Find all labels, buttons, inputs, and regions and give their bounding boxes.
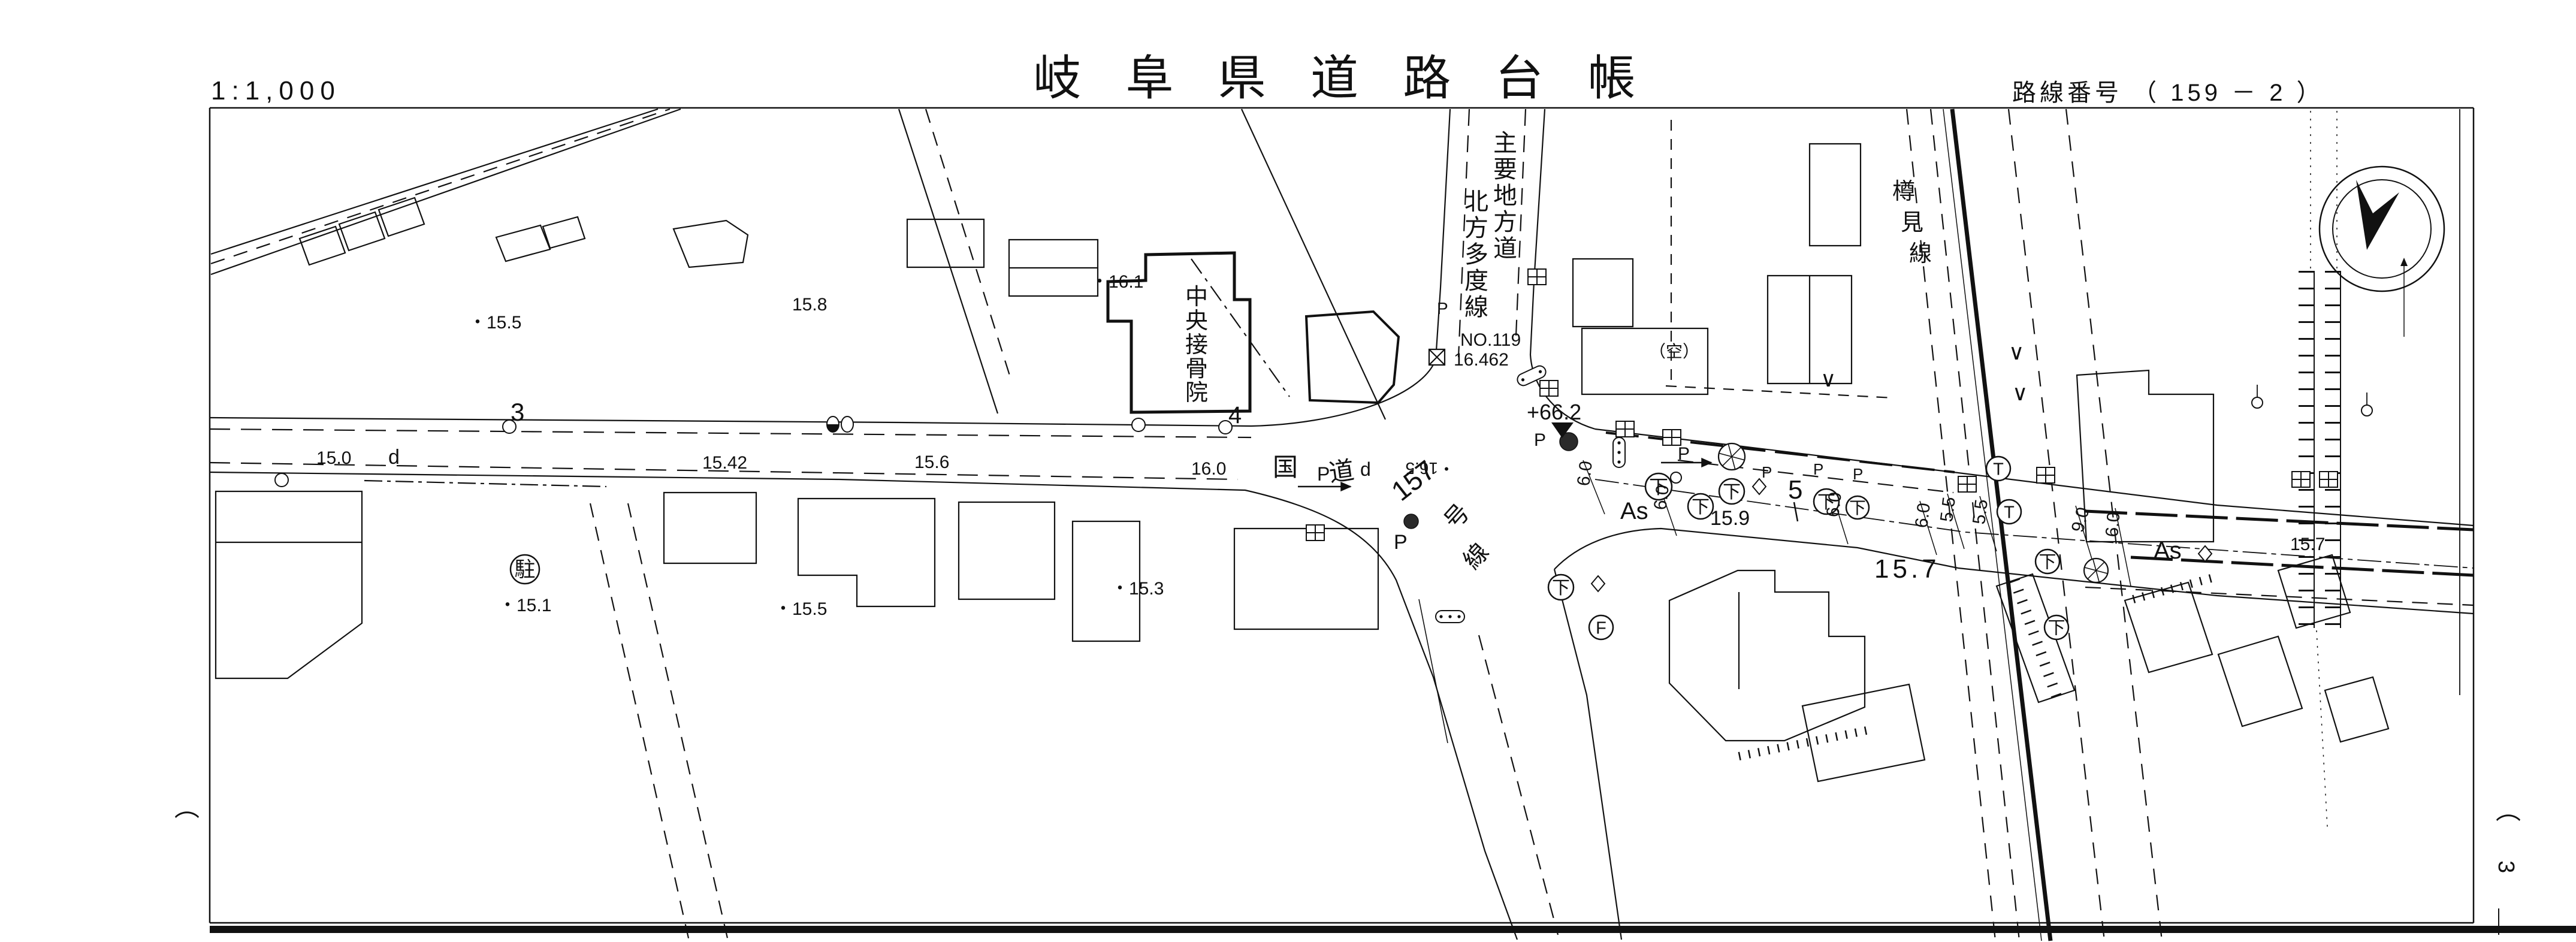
streetlight-icon: [2252, 385, 2263, 408]
map-label: 4: [1228, 402, 1242, 428]
map-label: 道: [1493, 236, 1517, 262]
map-label: P: [1853, 465, 1863, 483]
map-label: （空）: [1649, 342, 1699, 361]
road-ledger-map: 1:1,000 岐 阜 県 道 路 台 帳 路線番号 （ 159 － 2 ） （…: [0, 0, 2576, 942]
svg-text:下: 下: [1723, 482, 1741, 502]
station-point-icon: [1132, 418, 1145, 431]
map-label: 線: [1909, 241, 1932, 267]
utility-box-icon: [1528, 269, 1546, 285]
station-point-icon: [275, 473, 288, 487]
benchmark-icon: [841, 416, 853, 432]
map-label: 15.7: [1874, 554, 1940, 584]
left-margin-bracket: （: [172, 794, 200, 819]
page-number: 3: [2493, 861, 2518, 873]
manhole-symbol-icon: 下: [1688, 494, 1713, 519]
utility-box-icon: [1663, 430, 1681, 445]
map-label: 15.6: [914, 452, 949, 472]
map-label: 樽: [1892, 179, 1915, 204]
map-label: As: [1620, 498, 1648, 524]
map-label: 15.0: [316, 448, 351, 468]
svg-text:T: T: [1993, 460, 2004, 479]
map-label: P: [1678, 444, 1690, 464]
map-label: 道: [1327, 456, 1356, 487]
map-label: 多: [1464, 241, 1488, 268]
map-label: 線: [1458, 539, 1494, 574]
map-label: 15.8: [792, 295, 827, 315]
spoked-manhole-icon: [2084, 558, 2108, 582]
map-label: ・16.5: [1406, 459, 1455, 478]
manhole-symbol-icon: F: [1589, 615, 1613, 639]
map-label: 院: [1185, 381, 1208, 406]
map-label: P: [1534, 430, 1546, 450]
streetlight-icon: [2361, 393, 2372, 416]
manhole-symbol-icon: 下: [2045, 615, 2068, 639]
utility-pole-icon: [1613, 437, 1625, 467]
right-margin-bracket: （: [2493, 797, 2521, 822]
utility-box-icon: [2037, 467, 2055, 483]
map-label: 16.462: [1454, 350, 1509, 370]
map-frame: [210, 108, 2576, 933]
map-label: 16.0: [1191, 459, 1226, 479]
map-label: P: [1394, 531, 1408, 554]
map-label: ∨: [1820, 367, 1836, 391]
valve-symbol-icon: [2198, 546, 2212, 561]
manhole-symbol-icon: 下: [1846, 496, 1869, 519]
svg-text:下: 下: [2047, 618, 2065, 638]
map-label: 6.0: [1574, 460, 1596, 487]
map-label: 中: [1185, 285, 1208, 310]
map-label: 方: [1493, 209, 1517, 236]
north-arrow-icon: [2320, 167, 2444, 337]
svg-text:下: 下: [1849, 499, 1866, 517]
utility-box-icon: [1540, 381, 1558, 396]
map-label: 6.0: [1650, 484, 1673, 511]
map-label: NO.119: [1460, 330, 1521, 350]
map-label: 5.5: [1937, 496, 1959, 523]
svg-text:下: 下: [1692, 497, 1710, 517]
map-label: 15.42: [702, 453, 747, 473]
map-label: 6.0: [2102, 511, 2124, 538]
svg-text:T: T: [2004, 503, 2015, 522]
map-label: ∨: [2012, 381, 2028, 405]
map-label: 3: [511, 398, 524, 426]
benchmark-icon: [827, 416, 839, 432]
map-label: 度: [1464, 268, 1488, 294]
map-label: 15.7: [2290, 535, 2325, 554]
map-label: 地: [1493, 183, 1517, 209]
map-label: ・15.5: [469, 313, 521, 333]
map-symbols: 駐下下下下下下下下TTF: [275, 269, 2372, 639]
map-label: As: [2154, 538, 2182, 564]
map-label: P: [1762, 463, 1772, 481]
map-labels: ・15.515.8・16.115.0d315.4215.616.04・15.1・…: [316, 130, 2325, 619]
manhole-symbol-icon: 下: [2036, 549, 2059, 573]
svg-text:下: 下: [2039, 552, 2056, 572]
map-label: 主: [1493, 130, 1517, 156]
map-label: 接: [1185, 333, 1208, 358]
station-point-icon: [1671, 472, 1681, 483]
map-label: d: [388, 446, 400, 469]
valve-symbol-icon: [1591, 576, 1605, 591]
filled-marker-icon: [1404, 514, 1418, 529]
utility-box-icon: [1616, 421, 1634, 437]
manhole-symbol-icon: T: [1997, 500, 2021, 524]
manhole-symbol-icon: T: [1986, 457, 2010, 481]
map-label: 線: [1464, 294, 1488, 321]
map-label: 6.0: [1911, 502, 1934, 529]
crossed-box-icon: [1429, 349, 1445, 365]
map-label: ・15.5: [774, 599, 827, 619]
route-number-label: 路線番号 （ 159 － 2 ）: [2012, 80, 2324, 106]
spoked-manhole-icon: [1719, 443, 1745, 470]
railway-line: [1952, 109, 2050, 941]
map-label: 6.0: [1823, 491, 1846, 518]
map-label: 北: [1464, 189, 1488, 215]
map-label: P: [1317, 463, 1330, 485]
map-label: 15.9: [1710, 507, 1750, 530]
map-label: +66.2: [1527, 400, 1581, 424]
map-label: 号: [1439, 499, 1475, 535]
map-label: P: [1437, 299, 1448, 318]
map-label: 央: [1185, 309, 1208, 334]
map-label: 骨: [1185, 357, 1208, 382]
svg-text:下: 下: [1552, 578, 1570, 598]
road-ledger-page: 1:1,000 岐 阜 県 道 路 台 帳 路線番号 （ 159 － 2 ） （…: [0, 0, 2576, 942]
map-label: ・15.1: [499, 596, 551, 615]
map-label: 要: [1493, 156, 1517, 183]
map-label: 見: [1901, 210, 1923, 236]
map-label: ∨: [2009, 340, 2024, 364]
road-network: [210, 109, 2474, 941]
utility-box-icon: [1958, 476, 1976, 492]
utility-pole-icon: [1436, 611, 1464, 623]
utility-box-icon: [2320, 472, 2338, 487]
bottom-bar: [210, 926, 2576, 933]
map-label: 国: [1273, 453, 1298, 481]
svg-text:F: F: [1596, 618, 1606, 638]
utility-box-icon: [1306, 525, 1324, 541]
map-scale: 1:1,000: [211, 76, 341, 105]
page-title: 岐 阜 県 道 路 台 帳: [1033, 52, 1651, 105]
map-label: 方: [1464, 215, 1488, 241]
manhole-symbol-icon: 下: [1548, 575, 1574, 600]
manhole-symbol-icon: 駐: [511, 555, 539, 584]
map-label: d: [1360, 458, 1371, 480]
utility-box-icon: [2292, 472, 2310, 487]
map-label: ・16.1: [1091, 272, 1143, 292]
svg-text:駐: 駐: [514, 558, 535, 582]
map-label: 9.0: [2068, 505, 2094, 535]
map-label: 5: [1788, 475, 1802, 505]
map-label: ・15.3: [1111, 579, 1164, 599]
map-label: 5.5: [1969, 498, 1992, 525]
map-label: P: [1813, 460, 1823, 478]
manhole-symbol-icon: 下: [1719, 479, 1744, 504]
